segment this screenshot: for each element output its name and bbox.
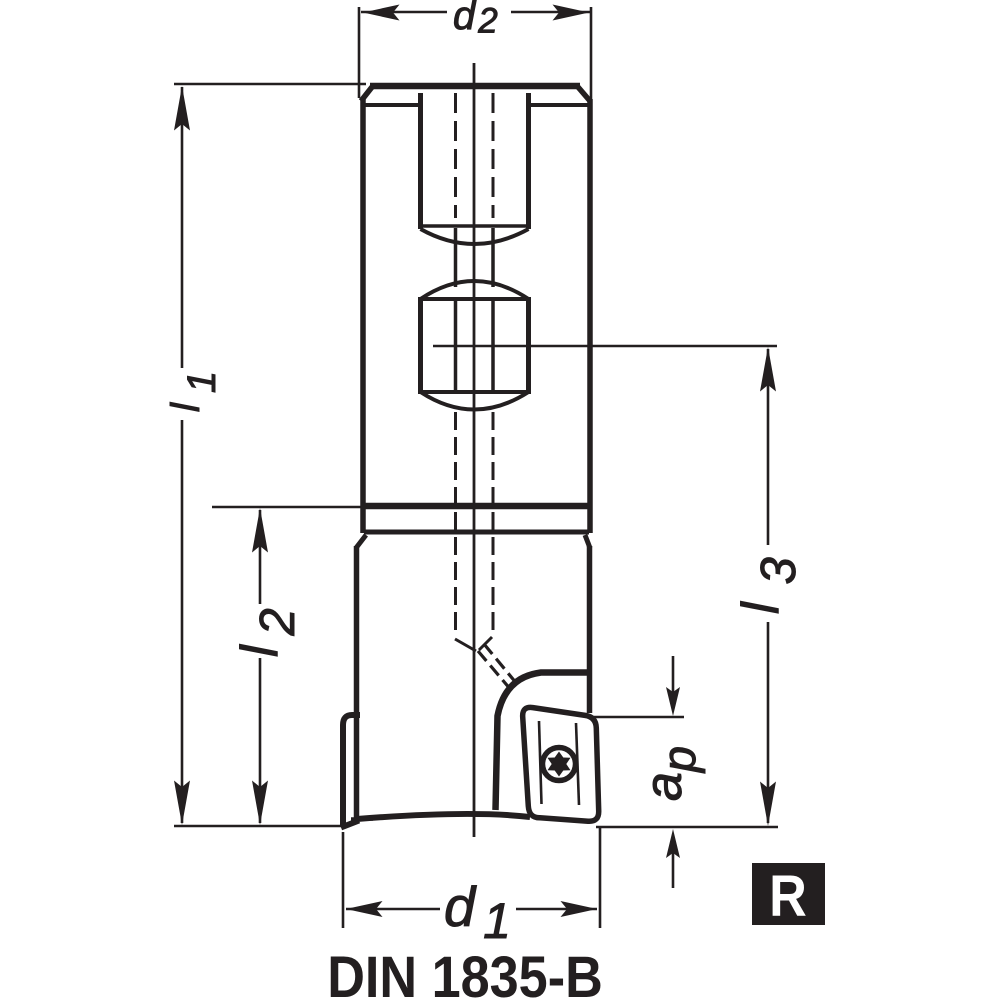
svg-text:l2: l2	[231, 608, 305, 657]
svg-text:d1: d1	[444, 875, 511, 949]
svg-text:l3: l3	[732, 557, 806, 614]
svg-text:d2: d2	[453, 0, 498, 41]
svg-text:R: R	[769, 863, 807, 928]
svg-text:ap: ap	[635, 746, 705, 801]
svg-text:l1: l1	[164, 371, 224, 412]
svg-text:DIN 1835-B: DIN 1835-B	[327, 944, 603, 1000]
